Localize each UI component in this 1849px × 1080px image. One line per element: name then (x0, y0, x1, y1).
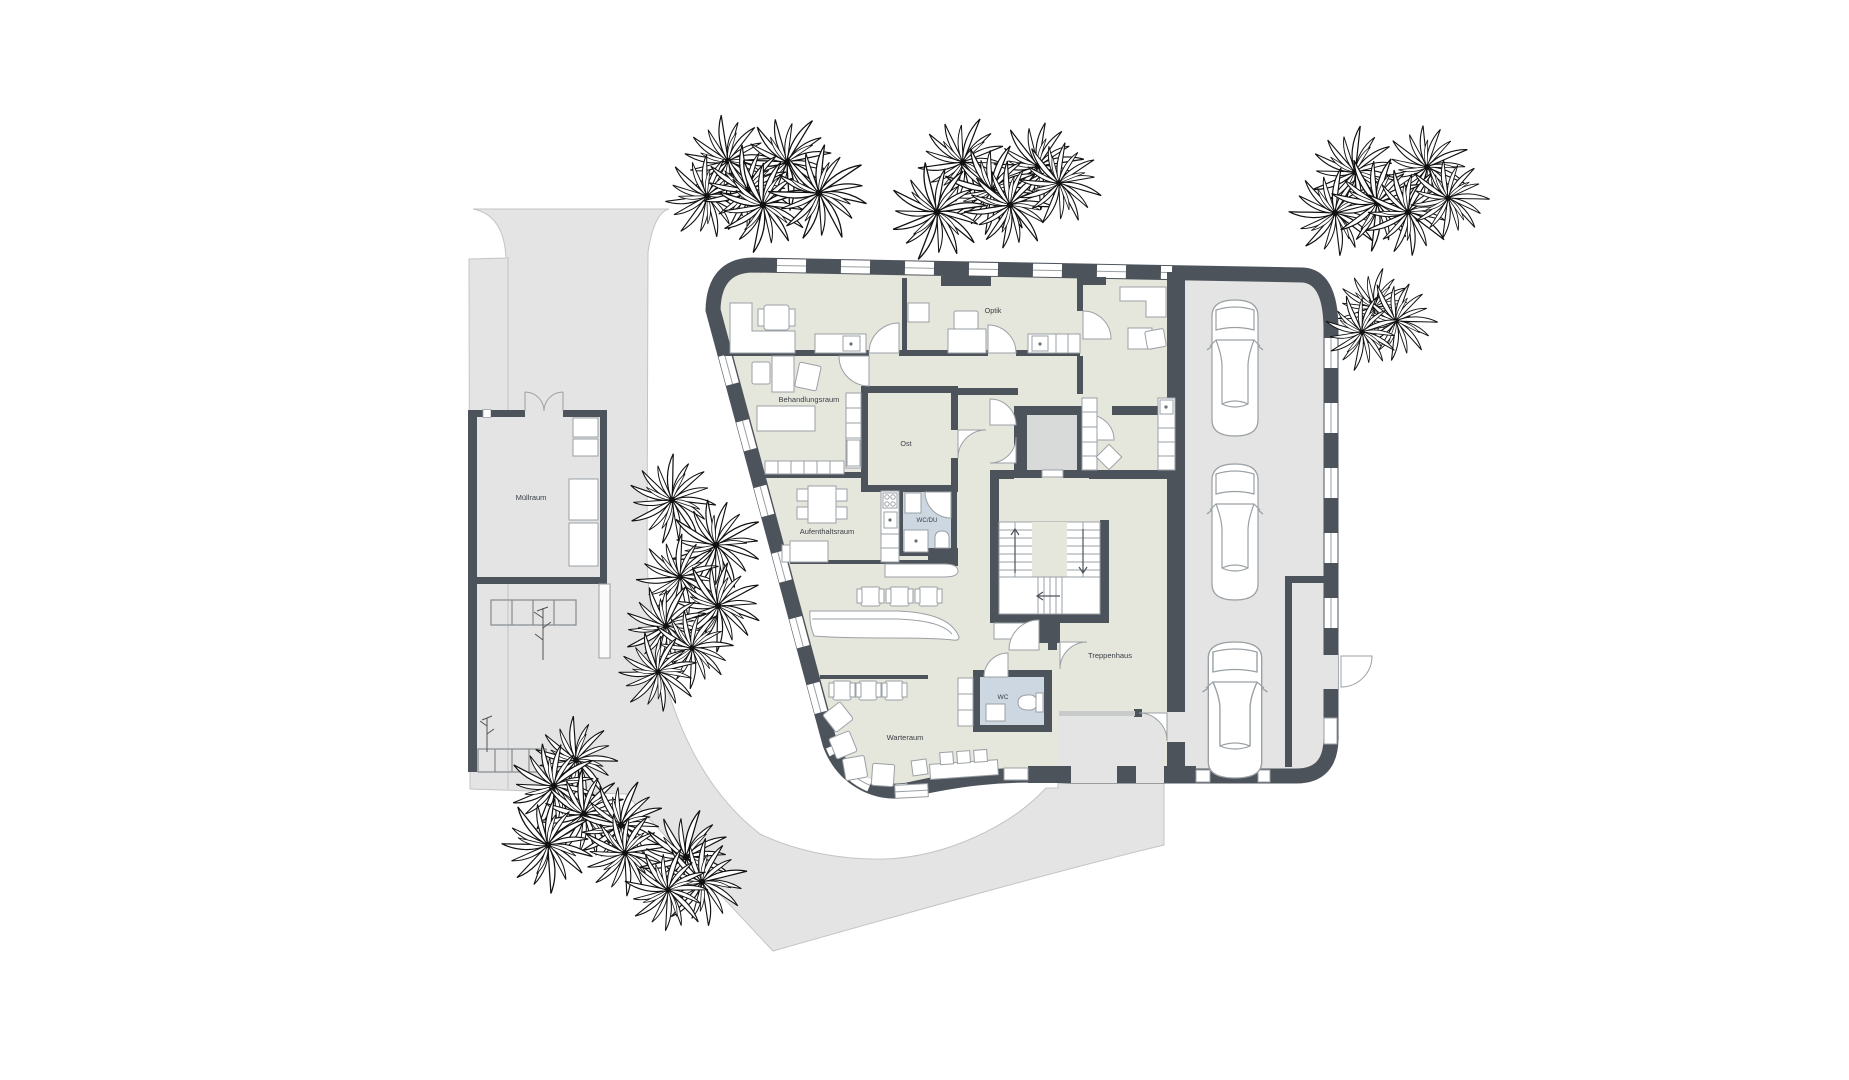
svg-text:Ost: Ost (900, 439, 911, 448)
svg-text:Treppenhaus: Treppenhaus (1088, 651, 1132, 660)
svg-text:Behandlungsraum: Behandlungsraum (779, 395, 840, 404)
svg-text:Optik: Optik (985, 306, 1002, 315)
svg-text:WC: WC (998, 694, 1009, 701)
svg-text:Aufenthaltsraum: Aufenthaltsraum (800, 527, 855, 536)
svg-text:Warteraum: Warteraum (887, 733, 924, 742)
svg-text:Müllraum: Müllraum (516, 493, 547, 502)
svg-text:WC/DU: WC/DU (917, 517, 938, 524)
